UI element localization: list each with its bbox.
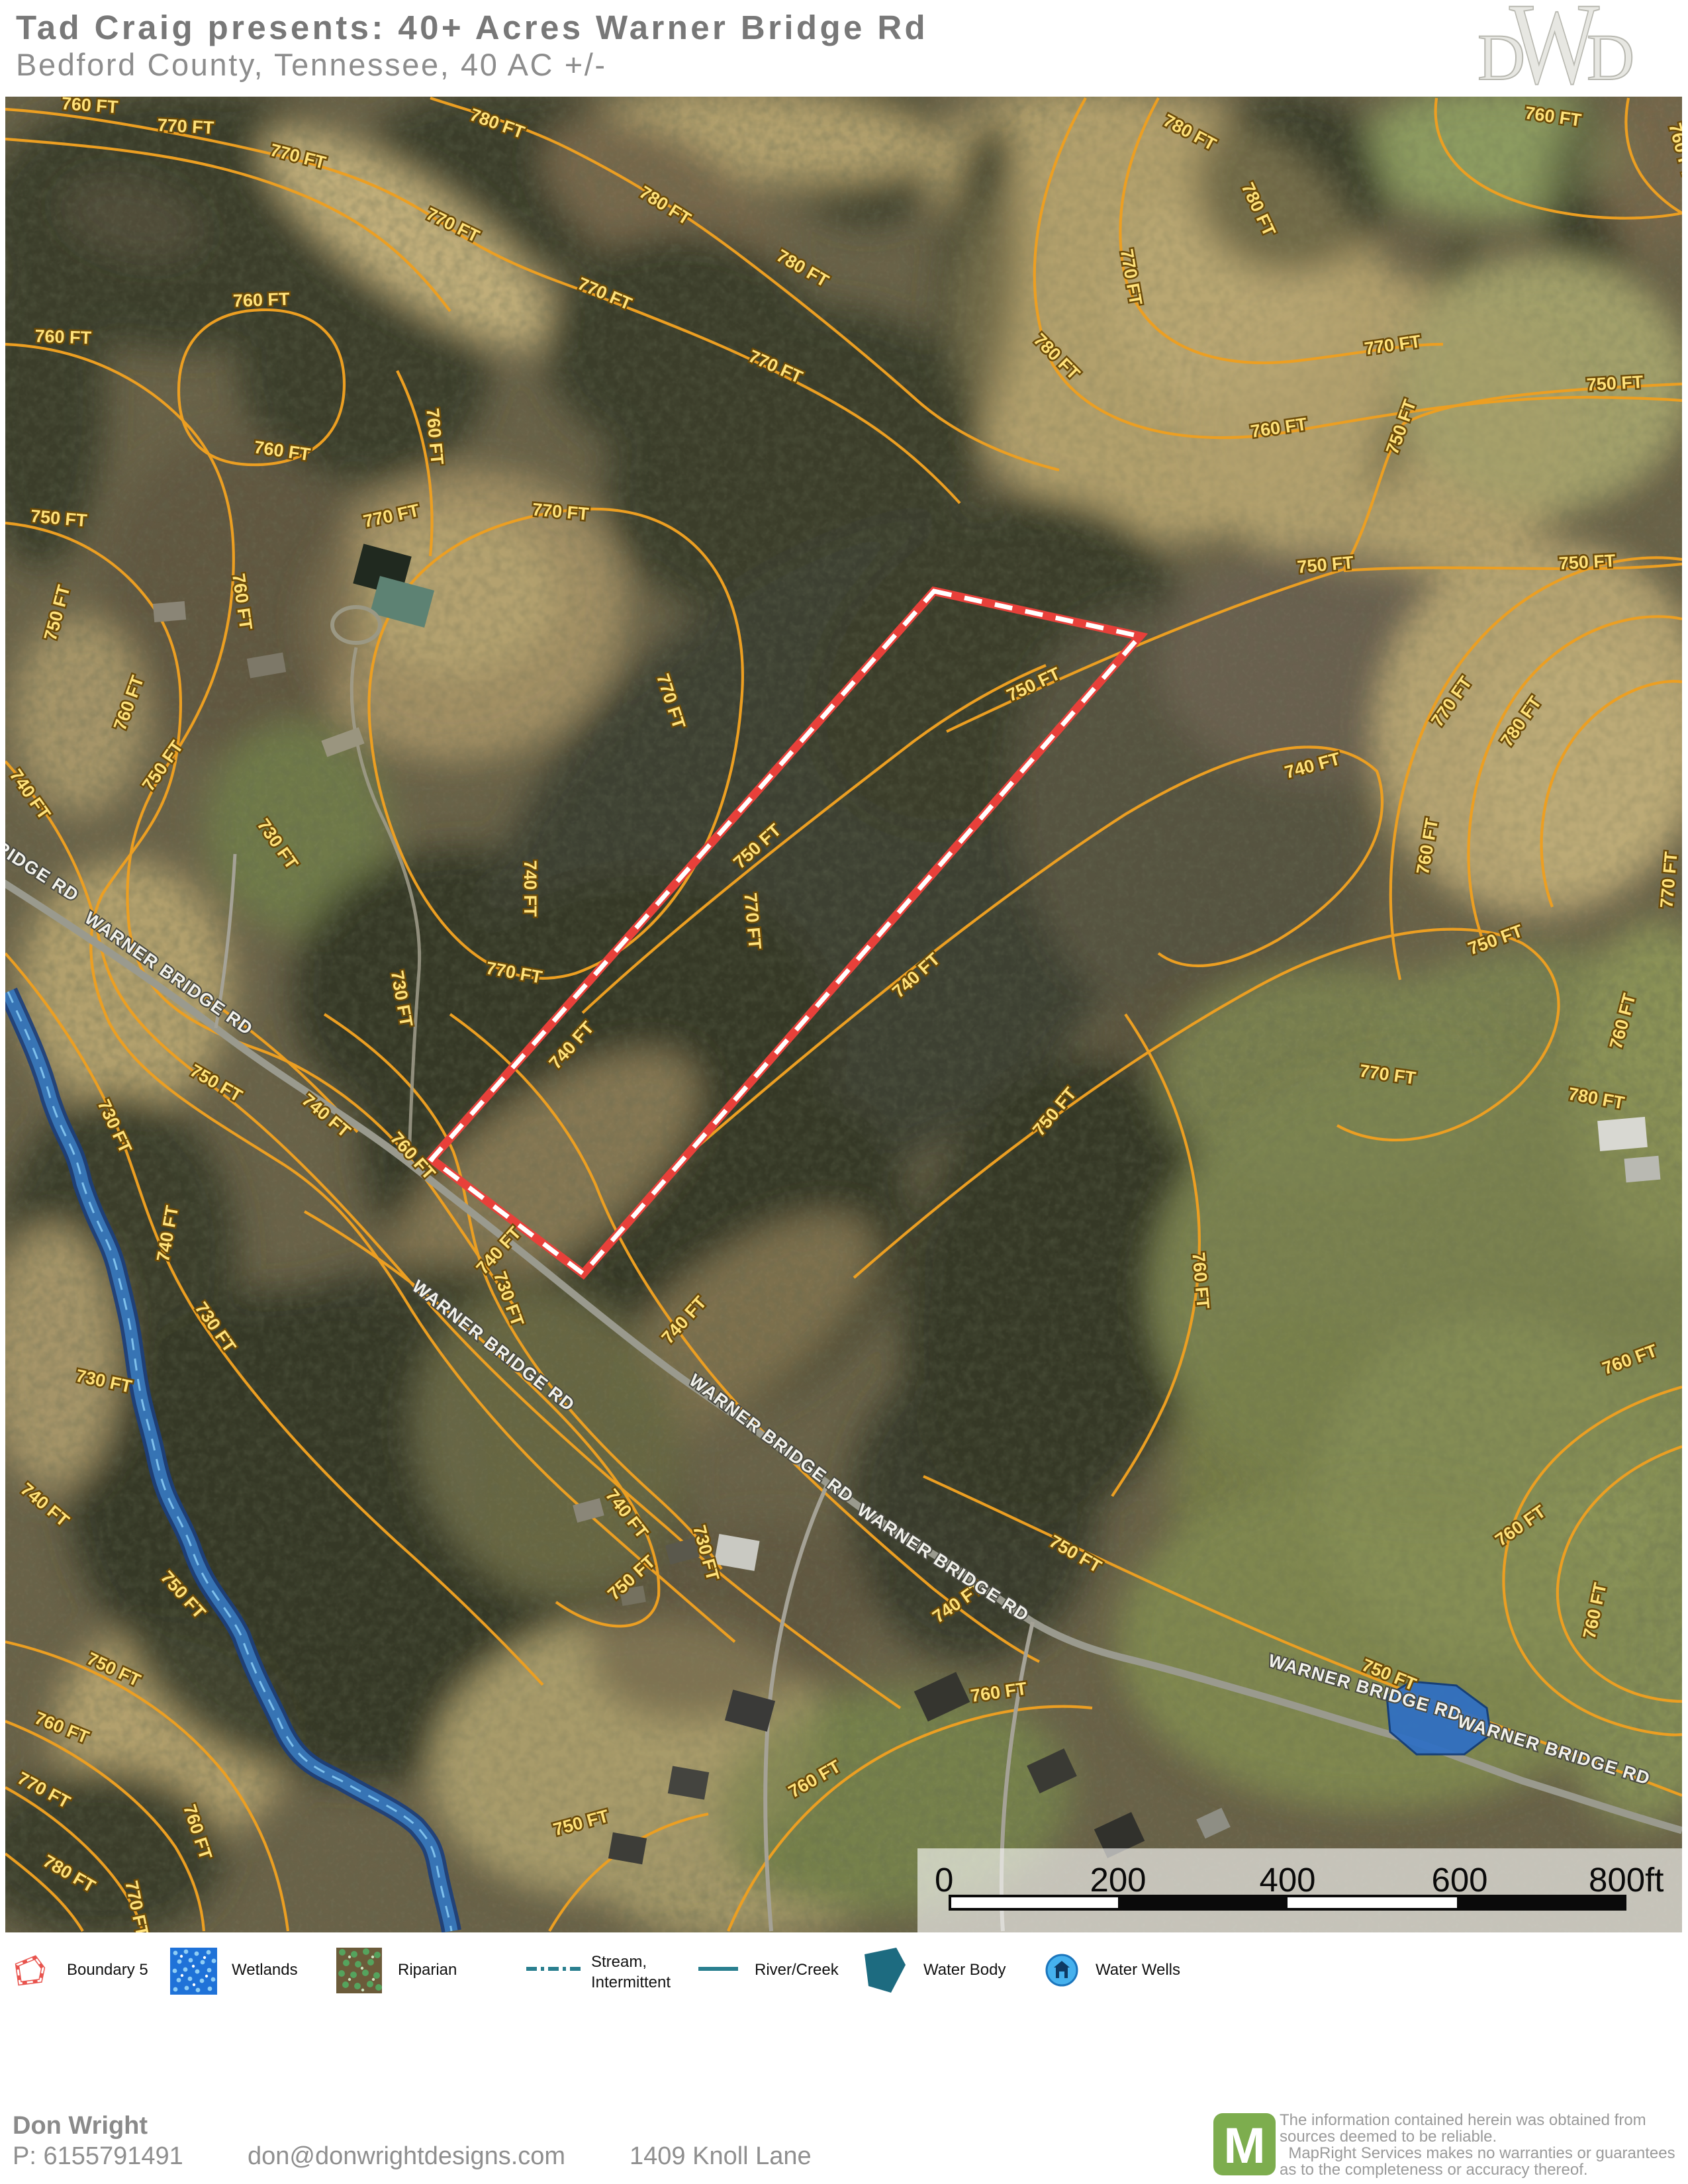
svg-text:200: 200 [1090,1861,1146,1899]
svg-text:0: 0 [935,1861,953,1899]
svg-text:600: 600 [1431,1861,1487,1899]
svg-text:800ft: 800ft [1589,1861,1664,1899]
svg-text:770 FT: 770 FT [157,115,214,138]
svg-text:750 FT: 750 FT [1586,372,1644,395]
svg-text:760 FT: 760 FT [232,289,290,311]
svg-text:740 FT: 740 FT [520,860,540,917]
svg-text:400: 400 [1259,1861,1315,1899]
svg-text:750 FT: 750 FT [1558,551,1616,573]
svg-text:760 FT: 760 FT [34,326,92,348]
